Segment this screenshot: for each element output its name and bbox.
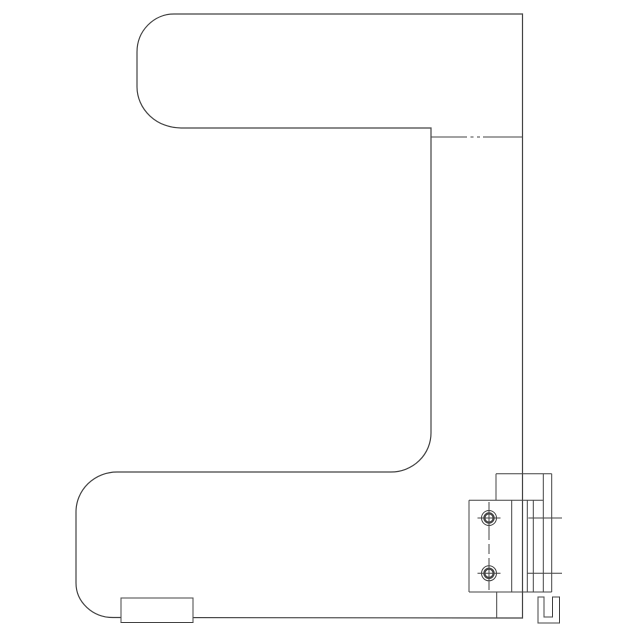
drawing-page [0, 0, 640, 640]
handle-outline [76, 14, 523, 618]
base-end-cap [121, 598, 193, 623]
bottom-channel-profile [538, 597, 560, 623]
technical-drawing-canvas [0, 0, 640, 640]
